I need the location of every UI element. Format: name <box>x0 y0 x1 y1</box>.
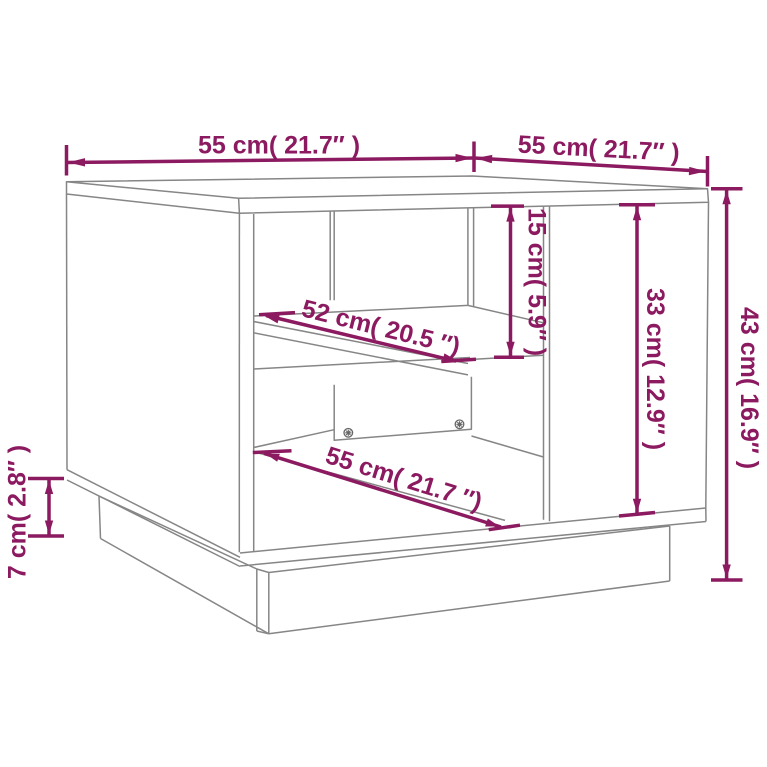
svg-text:52 cm( 20.5 ″): 52 cm( 20.5 ″) <box>299 295 463 361</box>
svg-text:43 cm( 16.9″ ): 43 cm( 16.9″ ) <box>735 307 763 469</box>
svg-text:55 cm( 21.7″ ): 55 cm( 21.7″ ) <box>198 132 360 160</box>
svg-text:15 cm( 5.9″ ): 15 cm( 5.9″ ) <box>523 208 551 356</box>
svg-text:33 cm( 12.9″ ): 33 cm( 12.9″ ) <box>641 288 669 450</box>
svg-text:7 cm( 2.8″ ): 7 cm( 2.8″ ) <box>4 445 32 579</box>
